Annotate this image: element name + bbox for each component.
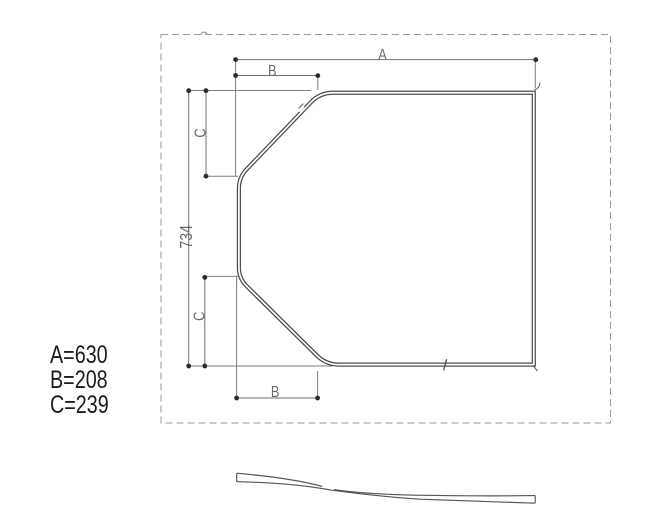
svg-text:B: B [268,63,277,80]
svg-text:734: 734 [178,225,197,249]
svg-text:A: A [378,47,387,64]
svg-text:C: C [191,312,208,321]
svg-text:C: C [193,128,210,137]
svg-text:B: B [271,384,280,401]
